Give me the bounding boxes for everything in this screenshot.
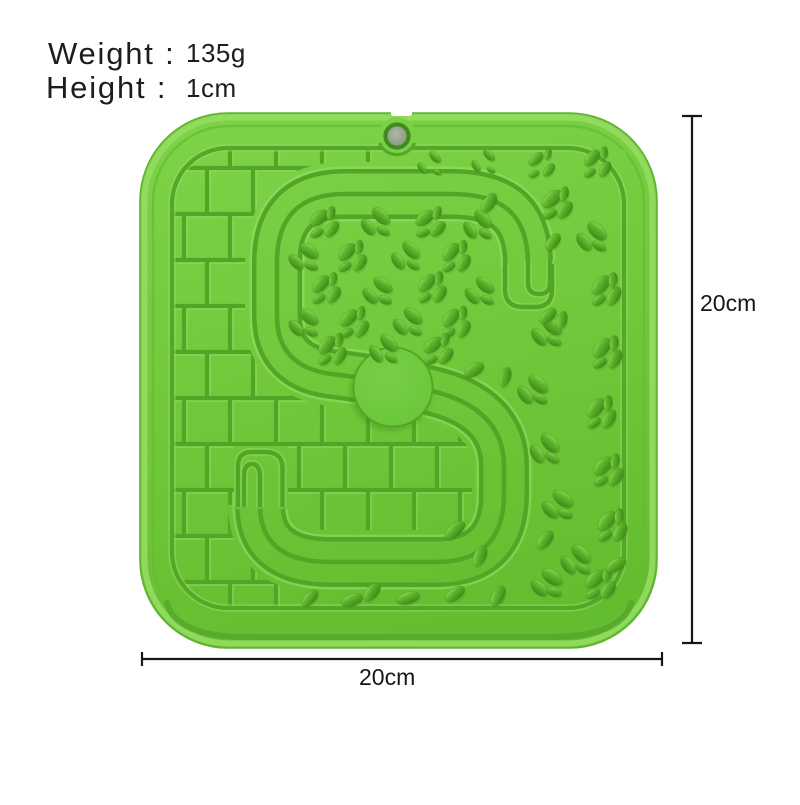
svg-text:1cm: 1cm xyxy=(186,73,237,103)
svg-text:135g: 135g xyxy=(186,38,246,68)
svg-text:20cm: 20cm xyxy=(359,664,415,690)
svg-text:20cm: 20cm xyxy=(700,290,756,316)
svg-text:Weight :: Weight : xyxy=(48,36,176,71)
svg-text:Height :: Height : xyxy=(46,70,167,105)
